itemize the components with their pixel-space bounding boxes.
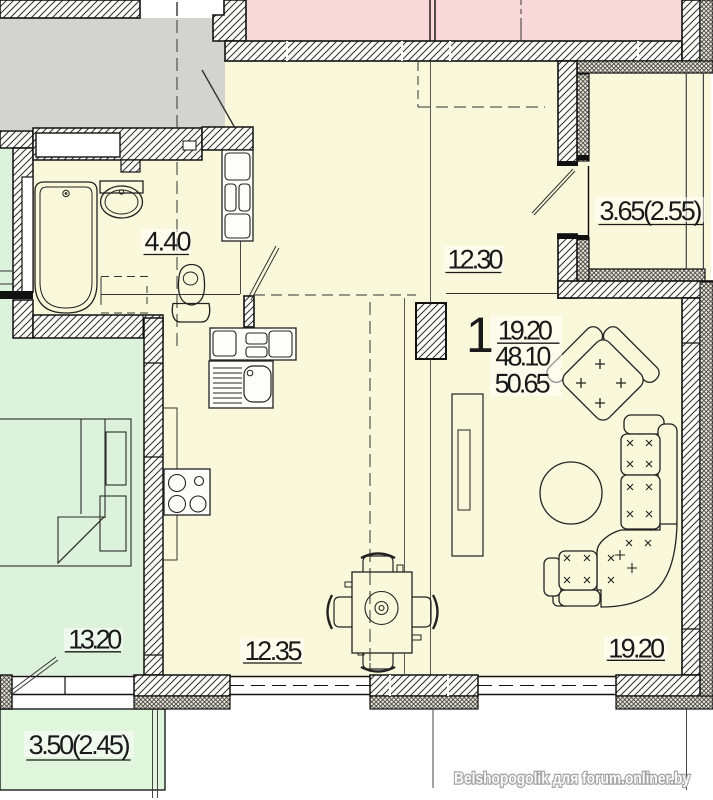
svg-text:12.30: 12.30: [448, 245, 504, 275]
svg-text:19.20: 19.20: [608, 633, 665, 663]
svg-text:1: 1: [466, 307, 494, 363]
svg-text:13.20: 13.20: [68, 625, 122, 655]
svg-text:50.65: 50.65: [495, 369, 551, 399]
svg-text:3.65(2.55): 3.65(2.55): [600, 196, 703, 226]
svg-text:48.10: 48.10: [495, 342, 551, 372]
svg-text:Belshopogolik для forum.online: Belshopogolik для forum.onliner.by: [454, 771, 690, 788]
svg-text:3.50(2.45): 3.50(2.45): [29, 730, 131, 760]
svg-text:4.40: 4.40: [145, 227, 192, 257]
svg-text:12.35: 12.35: [245, 636, 303, 666]
